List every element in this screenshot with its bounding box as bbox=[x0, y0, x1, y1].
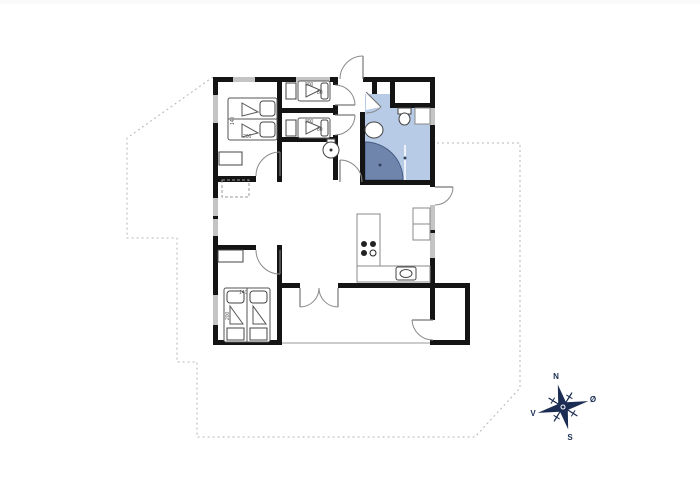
wall-segment bbox=[390, 103, 433, 108]
nightstand bbox=[286, 120, 296, 136]
wall-segment bbox=[213, 216, 218, 219]
shower-drain bbox=[379, 164, 382, 167]
shower-divider-knob bbox=[404, 157, 407, 160]
bed-length-label: 200 bbox=[305, 82, 314, 88]
pillow bbox=[260, 101, 275, 116]
master-bedroom-door bbox=[256, 152, 280, 176]
compass-star bbox=[532, 379, 593, 436]
window bbox=[430, 233, 435, 258]
kitchen-cabinet bbox=[413, 224, 430, 240]
wall-segment bbox=[430, 82, 435, 108]
kitchen-cabinet bbox=[413, 208, 430, 224]
toilet-bowl bbox=[399, 113, 410, 125]
floorplan-drawing: 200 140 200 80 200 80 bbox=[0, 0, 700, 500]
wall-segment bbox=[430, 258, 435, 283]
entrance-door bbox=[340, 56, 363, 79]
wall-segment bbox=[430, 230, 435, 233]
pillow bbox=[260, 122, 275, 137]
wall-segment bbox=[390, 82, 395, 103]
wall-segment bbox=[360, 112, 365, 182]
compass-rose: N Ø S V bbox=[530, 372, 596, 442]
compass-label-west: V bbox=[530, 409, 536, 418]
wall-segment bbox=[218, 245, 256, 250]
floorplan-page: 200 140 200 80 200 80 bbox=[0, 0, 700, 500]
second-bedroom-door bbox=[256, 250, 280, 274]
wall-segment bbox=[333, 105, 338, 115]
window bbox=[213, 219, 218, 236]
second-bedroom-furniture: 140 200 bbox=[218, 250, 270, 342]
wall-segment bbox=[430, 288, 435, 320]
compass-label-north: N bbox=[553, 372, 559, 381]
east-terrace-door bbox=[435, 187, 453, 205]
bed-width-label: 140 bbox=[239, 290, 248, 296]
wardrobe bbox=[218, 250, 243, 262]
pillow bbox=[250, 291, 267, 303]
bathroom-sink bbox=[365, 122, 383, 138]
kitchen bbox=[357, 208, 430, 282]
wall-segment bbox=[330, 77, 338, 82]
wall-segment bbox=[430, 125, 435, 187]
compass-label-east: Ø bbox=[590, 395, 596, 404]
wall-segment bbox=[372, 82, 377, 94]
window bbox=[213, 295, 218, 325]
wall-segment bbox=[282, 108, 338, 113]
stove-burner bbox=[361, 241, 367, 247]
foot-blanket bbox=[227, 328, 244, 340]
window bbox=[233, 77, 255, 82]
wall-segment bbox=[255, 77, 296, 82]
hall-living-door bbox=[340, 160, 362, 182]
wardrobe bbox=[219, 152, 242, 165]
french-doors bbox=[300, 288, 338, 307]
wall-segment bbox=[282, 283, 300, 288]
window bbox=[213, 198, 218, 216]
wall-segment bbox=[430, 340, 470, 345]
attic-hatch bbox=[222, 180, 249, 197]
compass-label-south: S bbox=[567, 433, 573, 442]
wall-segment bbox=[218, 176, 256, 182]
bed-width-label: 80 bbox=[317, 127, 323, 133]
window bbox=[213, 95, 218, 123]
wall-segment bbox=[465, 283, 470, 345]
window bbox=[430, 205, 435, 230]
kitchen-sink-basin bbox=[400, 270, 412, 278]
wall-segment bbox=[338, 283, 470, 288]
bed-width-label: 140 bbox=[230, 116, 236, 125]
kitchen-counter-vertical bbox=[357, 214, 380, 268]
nightstand bbox=[286, 83, 296, 99]
bathroom-cabinet bbox=[415, 108, 430, 124]
single-bedroom-top-furniture: 200 80 bbox=[286, 81, 330, 101]
bedroom-single-mid-door bbox=[335, 115, 355, 135]
bed-length-label: 200 bbox=[225, 311, 231, 320]
wall-segment bbox=[213, 77, 233, 82]
wall-segment bbox=[213, 236, 218, 295]
single-bedroom-mid-furniture: 200 80 bbox=[286, 118, 330, 138]
bed-length-label: 200 bbox=[243, 134, 252, 140]
stove-burner bbox=[370, 241, 376, 247]
window bbox=[430, 108, 435, 125]
stove-center bbox=[330, 149, 333, 152]
bed-length-label: 200 bbox=[305, 119, 314, 125]
wall-segment bbox=[363, 77, 435, 82]
stove-burner bbox=[370, 250, 376, 256]
bedroom-single-top-door bbox=[335, 85, 355, 105]
utility-room-door bbox=[412, 320, 433, 340]
kitchen-counter-horizontal bbox=[357, 266, 430, 282]
wall-segment bbox=[213, 82, 218, 95]
foot-blanket bbox=[250, 328, 267, 340]
bed-width-label: 80 bbox=[317, 90, 323, 96]
wall-segment bbox=[360, 180, 433, 185]
wall-segment bbox=[213, 123, 218, 198]
stove-burner bbox=[361, 250, 367, 256]
